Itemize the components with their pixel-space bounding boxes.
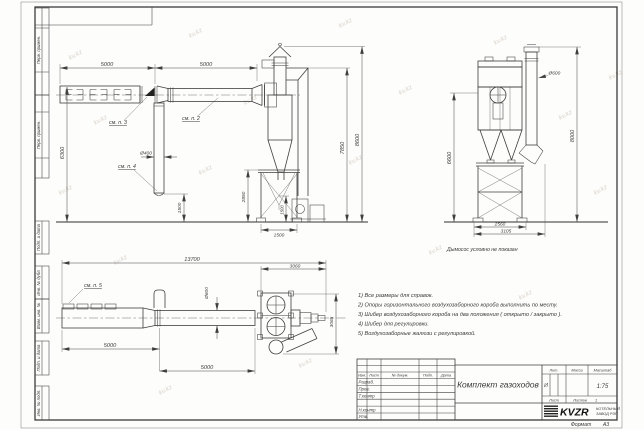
- dim-label: 3060: [290, 263, 301, 269]
- stamp-label: Перв. примен.: [36, 36, 41, 65]
- signature-table: Изм. Лист № докум. Подп. Дата Разраб. Пр…: [357, 359, 455, 420]
- dim-label: Ø400: [139, 151, 152, 157]
- note-line: 4) Шибер для регулировки.: [358, 322, 429, 328]
- company-name-line1: КОТЕЛЬНЫЙ: [596, 407, 620, 411]
- dim-label: 8000: [570, 129, 576, 142]
- notes-block: 1) Все размеры для справок. 2) Опоры гор…: [357, 293, 562, 337]
- stamp-label: Перв. примен.: [36, 121, 41, 150]
- ref-label: см. п. 2: [182, 116, 200, 122]
- watermark-text: kv.kz: [58, 184, 75, 197]
- sig-row-label: Т.контр: [359, 394, 376, 399]
- dim-label: 1500: [274, 233, 285, 239]
- outlet-pipe: [519, 45, 543, 165]
- louver-glyphs: [66, 90, 131, 101]
- note-line: 3) Шибер воздухозаборного короба на два …: [358, 312, 562, 318]
- note-line: 2) Опоры горизонтального воздухозаборног…: [357, 303, 558, 309]
- logo-text: KVZR: [560, 407, 589, 419]
- col-header: Изм.: [358, 374, 366, 378]
- dim-label: 13700: [184, 257, 200, 263]
- company-name-line2: ЗАВОД РЭП: [596, 412, 618, 416]
- watermark-layer: kv.kz kv.kz kv.kz kv.kz kv.kz kv.kz kv.k…: [58, 17, 625, 397]
- ref-label: см. п. 5: [84, 283, 102, 289]
- watermark-text: kv.kz: [558, 109, 575, 122]
- drawing-sheet: kv.kz kv.kz kv.kz kv.kz kv.kz kv.kz kv.k…: [0, 0, 644, 430]
- dimensions-cyclone: Ø600 6600 8000 2560 3105: [447, 47, 581, 237]
- watermark-text: kv.kz: [518, 289, 535, 302]
- watermark-text: kv.kz: [398, 84, 415, 97]
- callouts-side: см. п. 3 см. п. 2 см. п. 4: [109, 97, 218, 191]
- watermark-text: kv.kz: [93, 114, 110, 127]
- dimensions-plan: 13700 3060 Ø600 3065 5000 5000: [62, 257, 339, 374]
- sheets-header: Листов: [572, 399, 587, 403]
- dimensions-side: 5000 5000 6300 Ø400 1500 2850 1500 1500 …: [60, 47, 365, 239]
- dim-label: Ø600: [548, 71, 561, 77]
- cyclone-assembly: [257, 43, 327, 222]
- dim-label: Ø600: [204, 287, 210, 300]
- dim-label: 6300: [60, 146, 66, 159]
- dim-label: 6600: [447, 151, 453, 164]
- cyclone-stand: [473, 166, 527, 222]
- title-block: Изм. Лист № докум. Подп. Дата Разраб. Пр…: [357, 359, 620, 420]
- col-header: Подп.: [423, 374, 433, 378]
- dim-label: 1500: [280, 205, 285, 215]
- col-header: № докум.: [392, 374, 409, 378]
- flue-fan: [290, 199, 326, 222]
- watermark-text: kv.kz: [158, 384, 175, 397]
- dim-label: 8600: [355, 133, 361, 146]
- dim-label: 5000: [104, 343, 117, 349]
- watermark-text: kv.kz: [198, 164, 215, 177]
- sig-row-label: Пров.: [359, 387, 370, 392]
- margin-stamp-bottom: Подп. и дата Инв. № дубл. Взам. инв. № П…: [35, 221, 49, 420]
- stamp-label: Подп. и дата: [36, 223, 41, 251]
- view-side-elevation: 5000 5000 6300 Ø400 1500 2850 1500 1500 …: [56, 43, 368, 238]
- ref-label: см. п. 3: [109, 120, 127, 126]
- document-title: Комплект газоходов: [457, 380, 539, 390]
- margin-stamp-top-2: Перв. примен.: [35, 95, 49, 178]
- dim-label: 3065: [329, 316, 335, 327]
- dim-label: 2850: [241, 191, 247, 203]
- watermark-text: kv.kz: [298, 357, 315, 370]
- view-battery-cyclone: Ø600 6600 8000 2560 3105 Дымосос условно…: [444, 45, 608, 254]
- callouts-plan: см. п. 5: [69, 283, 102, 303]
- watermark-text: kv.kz: [338, 17, 355, 30]
- watermark-text: kv.kz: [428, 244, 445, 257]
- watermark-text: kv.kz: [188, 27, 205, 40]
- gost-drawing: kv.kz kv.kz kv.kz kv.kz kv.kz kv.kz kv.k…: [0, 0, 644, 430]
- dim-label: 1500: [177, 202, 183, 213]
- stamp-label: Инв. № подл.: [36, 390, 41, 417]
- lit-value: И: [544, 383, 548, 389]
- watermark-text: kv.kz: [113, 254, 130, 267]
- dim-label: 5000: [101, 62, 114, 68]
- watermark-text: kv.kz: [243, 94, 260, 107]
- dim-label: 5000: [201, 365, 214, 371]
- note-line: 1) Все размеры для справок.: [358, 293, 433, 299]
- watermark-text: kv.kz: [493, 34, 510, 47]
- format-note: Формат А3: [571, 422, 610, 428]
- dim-label: 2560: [494, 222, 506, 228]
- plan-cyclones: [258, 291, 294, 340]
- mass-header: Масса: [571, 368, 582, 372]
- view-caption: Дымосос условно не показан: [446, 247, 518, 253]
- stamp-label: Инв. № дубл.: [36, 269, 41, 295]
- scale-header: Масштаб: [594, 368, 613, 372]
- sheet-header: Лист: [548, 399, 559, 403]
- sig-row-label: Н.контр: [359, 407, 377, 412]
- lit-header: Лит.: [549, 368, 559, 372]
- view-plan: 13700 3060 Ø600 3065 5000 5000 см. п. 5: [56, 257, 348, 374]
- watermark-text: kv.kz: [608, 69, 625, 82]
- sig-row-label: Утв.: [359, 414, 369, 419]
- scale-value: 1:75: [597, 384, 609, 390]
- logo-mark: [544, 406, 558, 417]
- stamp-label: Подп. и дата: [36, 344, 41, 372]
- format-label: Формат: [571, 422, 592, 428]
- watermark-text: kv.kz: [68, 49, 85, 62]
- format-value: А3: [602, 422, 609, 428]
- ref-label: см. п. 4: [118, 164, 136, 170]
- sig-row-label: Разраб.: [359, 380, 375, 385]
- stamp-label: Взам. инв. №: [36, 302, 41, 329]
- sheets-value: 1: [595, 399, 597, 403]
- dim-label: 5000: [200, 62, 213, 68]
- dim-label: 3105: [501, 229, 512, 235]
- damper-symbol: [145, 88, 155, 97]
- title-block-right: Лит. Масса Масштаб И 1:75 Лист Листов 1 …: [542, 365, 620, 419]
- company-logo: KVZR КОТЕЛЬНЫЙ ЗАВОД РЭП: [544, 406, 620, 419]
- col-header: Лист: [368, 374, 379, 378]
- margin-stamp-top-1: Перв. примен.: [35, 8, 49, 95]
- watermark-text: kv.kz: [593, 184, 610, 197]
- note-line: 5) Воздухозаборные жалюзи с регулировкой…: [358, 330, 476, 337]
- col-header: Дата: [440, 374, 451, 378]
- dim-label: 7850: [340, 141, 346, 154]
